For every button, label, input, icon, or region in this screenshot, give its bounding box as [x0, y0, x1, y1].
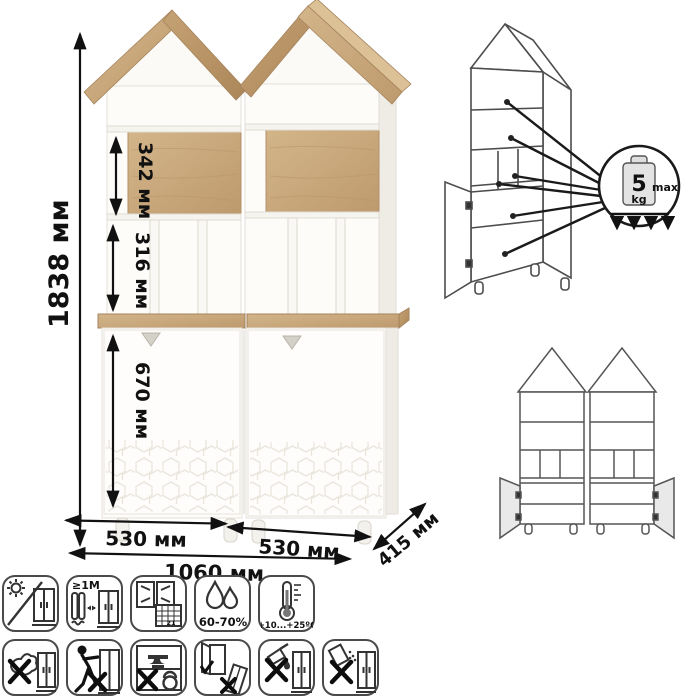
honeycomb-pattern-right	[250, 442, 382, 514]
variant-right-hinged	[588, 348, 674, 538]
oak-top-left	[98, 314, 245, 328]
anvil-icon	[148, 655, 168, 668]
dim-arrow-right-width	[228, 527, 370, 537]
kettlebell-icon	[163, 672, 176, 690]
label-total-height: 1838 мм	[44, 199, 75, 328]
max-load-badge: 5 kg max	[599, 146, 679, 228]
open-window-icon	[137, 582, 174, 607]
wardrobe-icon	[356, 652, 376, 692]
temperature-icon: +10...+25ºC	[258, 575, 315, 632]
no-pushing-icon	[66, 639, 123, 696]
thermometer-icon	[280, 582, 301, 620]
honeycomb-pattern-left	[106, 440, 238, 512]
label-door-section: 670 мм	[131, 362, 153, 439]
oak-top-right	[247, 314, 399, 328]
product-dimension-sheet: 1838 мм 342 мм 316 мм 670 мм 530 мм 530 …	[0, 0, 683, 700]
no-wet-cloth-icon	[2, 639, 59, 696]
shelf-load-diagram: 5 kg max	[443, 10, 683, 315]
wardrobe-icon	[291, 652, 312, 692]
weight-unit: kg	[631, 193, 646, 206]
calendar-icon: 21	[156, 605, 181, 627]
distance-label: ≥1M	[72, 579, 100, 592]
care-icons-row-1: ≥1M	[2, 575, 315, 632]
no-solvents-icon	[258, 639, 315, 696]
no-overload-icon	[130, 639, 187, 696]
radiator-icon	[72, 593, 85, 625]
wardrobe-icon	[97, 591, 120, 627]
wardrobe-icon	[36, 653, 56, 691]
care-icons-row-2	[2, 639, 379, 696]
calendar-day-label: 21	[166, 619, 176, 627]
label-right-width: 530 мм	[258, 534, 341, 564]
no-abrasives-icon	[322, 639, 379, 696]
furniture-dimension-drawing: 1838 мм 342 мм 316 мм 670 мм 530 мм 530 …	[0, 0, 455, 590]
label-left-width: 530 мм	[105, 526, 187, 552]
variant-left-hinged	[500, 348, 586, 538]
cross-out-x	[332, 662, 351, 682]
label-middle-shelf: 316 мм	[131, 232, 153, 309]
wardrobe-icon	[32, 589, 56, 625]
keep-1m-from-heat-icon: ≥1M	[66, 575, 123, 632]
label-upper-shelf: 342 мм	[134, 142, 156, 219]
open-door	[445, 182, 471, 298]
humidity-icon: 60-70%	[194, 575, 251, 632]
acclimatize-window-icon: 21	[130, 575, 187, 632]
cross-out-x	[90, 674, 105, 690]
max-label: max	[652, 181, 678, 194]
cross-out-x	[139, 671, 156, 689]
double-arrow-icon	[87, 605, 96, 610]
temperature-label: +10...+25ºC	[261, 621, 313, 630]
door-variants-diagram	[494, 330, 680, 548]
dim-arrow-left-width	[66, 520, 226, 523]
sun-icon	[7, 579, 25, 597]
no-direct-sunlight-icon	[2, 575, 59, 632]
side-panel	[379, 84, 396, 314]
water-drops-icon	[207, 582, 237, 608]
line-art-cabinet-open	[445, 24, 571, 298]
humidity-label: 60-70%	[198, 615, 247, 629]
hang-doors-no-tilt-icon	[194, 639, 251, 696]
